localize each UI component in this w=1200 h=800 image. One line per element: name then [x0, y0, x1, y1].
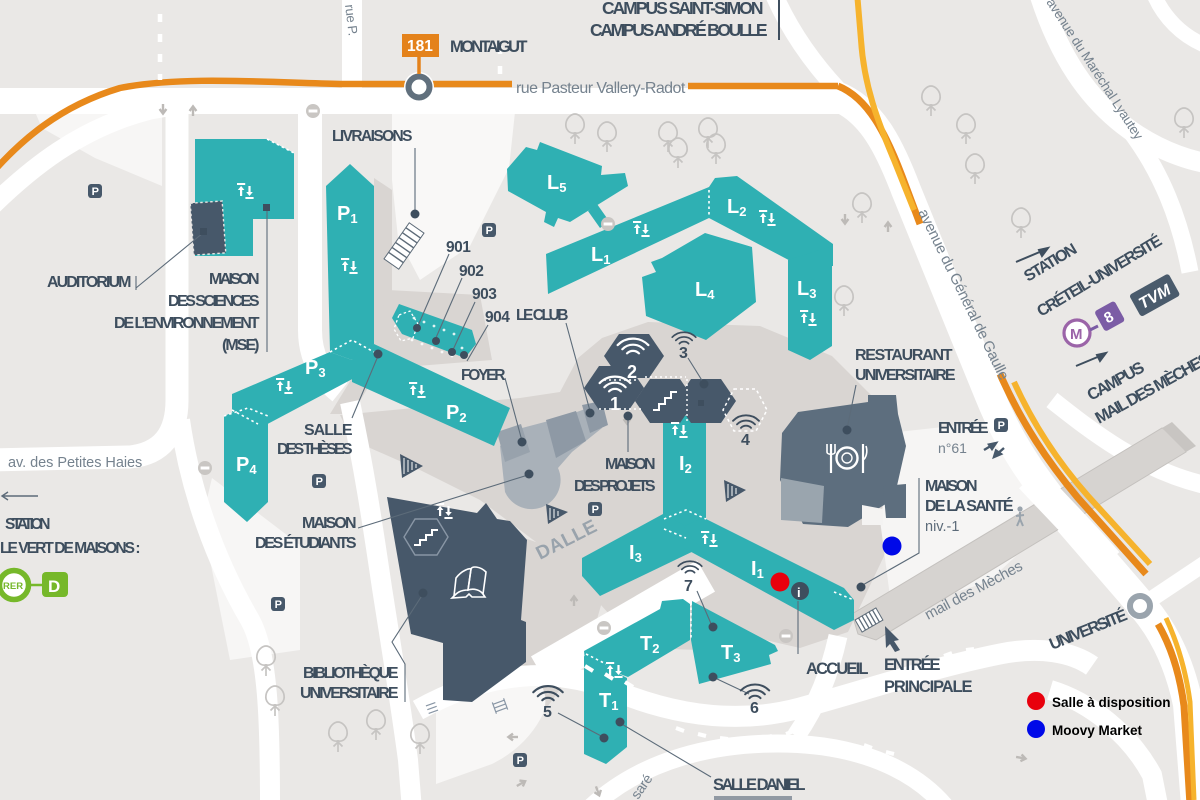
svg-text:1: 1	[610, 394, 620, 414]
svg-text:PRINCIPALE: PRINCIPALE	[884, 678, 972, 696]
svg-text:FOYER: FOYER	[461, 367, 505, 384]
svg-text:Salle à disposition: Salle à disposition	[1052, 695, 1171, 710]
svg-text:DE LA SANTÉ: DE LA SANTÉ	[925, 496, 1014, 515]
svg-text:niv.-1: niv.-1	[925, 519, 959, 535]
svg-text:903: 903	[472, 286, 497, 303]
svg-text:MAISON: MAISON	[925, 478, 977, 495]
svg-text:MONTAIGUT: MONTAIGUT	[450, 38, 527, 56]
svg-text:5: 5	[543, 704, 552, 721]
svg-text:902: 902	[459, 263, 483, 280]
svg-text:DES THÈSES: DES THÈSES	[277, 439, 353, 458]
svg-text:D: D	[48, 577, 60, 596]
svg-text:UNIVERSITAIRE: UNIVERSITAIRE	[855, 367, 956, 384]
svg-text:ACCUEIL: ACCUEIL	[806, 660, 868, 678]
svg-text:MAISON: MAISON	[209, 271, 259, 288]
svg-text:901: 901	[446, 239, 471, 256]
svg-text:MAISON: MAISON	[605, 456, 655, 473]
svg-text:DES ÉTUDIANTS: DES ÉTUDIANTS	[255, 533, 357, 552]
svg-text:CAMPUS ANDRÉ BOULLE: CAMPUS ANDRÉ BOULLE	[590, 19, 767, 40]
svg-text:i: i	[797, 585, 801, 600]
svg-text:2: 2	[627, 362, 637, 382]
svg-text:LE VERT DE MAISONS :: LE VERT DE MAISONS :	[0, 540, 140, 557]
svg-text:SALLE: SALLE	[304, 422, 353, 439]
svg-text:CAMPUS SAINT-SIMON: CAMPUS SAINT-SIMON	[602, 0, 763, 18]
svg-text:DE L’ENVIRONNEMENT: DE L’ENVIRONNEMENT	[114, 315, 260, 332]
svg-text:AUDITORIUM: AUDITORIUM	[47, 274, 131, 291]
svg-text:ENTRÉE: ENTRÉE	[884, 655, 940, 674]
svg-text:DES SCIENCES: DES SCIENCES	[168, 293, 260, 310]
svg-text:UNIVERSITAIRE: UNIVERSITAIRE	[300, 685, 399, 702]
svg-text:n°61: n°61	[938, 440, 967, 456]
svg-text:MAISON: MAISON	[302, 515, 356, 532]
svg-text:(MSE): (MSE)	[222, 337, 259, 354]
svg-text:BIBLIOTHÈQUE: BIBLIOTHÈQUE	[303, 663, 399, 682]
svg-text:rue Pasteur Vallery-Radot: rue Pasteur Vallery-Radot	[516, 80, 686, 97]
svg-text:av. des Petites Haies: av. des Petites Haies	[8, 455, 142, 471]
svg-text:4: 4	[741, 432, 750, 449]
svg-text:Moovy Market: Moovy Market	[1052, 723, 1143, 738]
svg-text:STATION: STATION	[5, 516, 50, 533]
svg-text:M: M	[1070, 326, 1083, 343]
svg-text:SALLE DANIEL: SALLE DANIEL	[713, 776, 805, 794]
svg-text:ENTRÉE: ENTRÉE	[938, 418, 989, 437]
svg-text:LE CLUB: LE CLUB	[516, 307, 568, 324]
svg-text:RESTAURANT: RESTAURANT	[855, 347, 953, 364]
svg-text:RER: RER	[3, 581, 23, 592]
svg-text:904: 904	[485, 309, 510, 326]
svg-text:DES PROJETS: DES PROJETS	[574, 478, 656, 495]
svg-text:LIVRAISONS: LIVRAISONS	[332, 128, 412, 145]
svg-text:7: 7	[684, 578, 693, 595]
svg-text:3: 3	[679, 345, 688, 362]
svg-text:181: 181	[407, 38, 433, 55]
svg-text:6: 6	[750, 700, 759, 717]
